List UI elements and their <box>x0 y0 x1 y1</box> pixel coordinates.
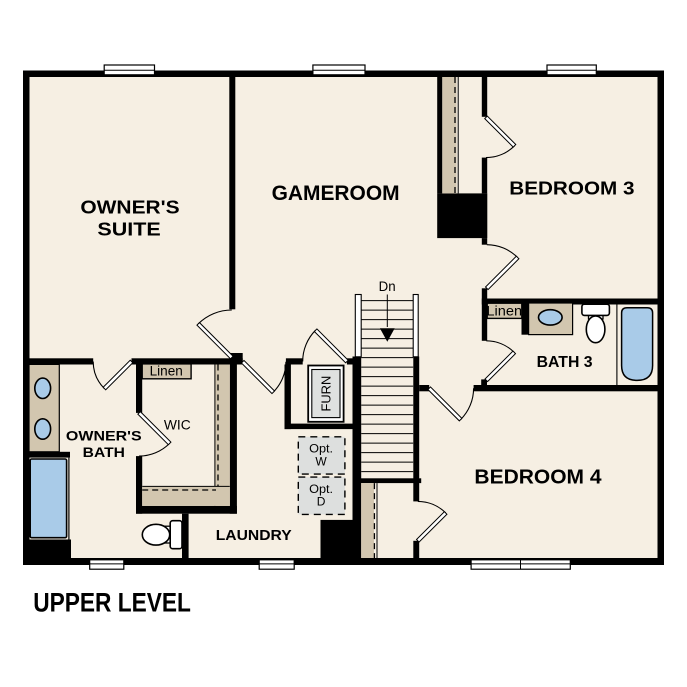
svg-text:FURN: FURN <box>319 376 334 412</box>
svg-text:SUITE: SUITE <box>97 219 160 239</box>
svg-text:OWNER'S: OWNER'S <box>80 198 179 218</box>
svg-text:BEDROOM 3: BEDROOM 3 <box>509 178 634 198</box>
svg-text:GAMEROOM: GAMEROOM <box>272 182 400 205</box>
svg-text:Linen: Linen <box>150 364 183 379</box>
svg-text:Dn: Dn <box>379 279 396 294</box>
svg-text:BATH 3: BATH 3 <box>537 354 593 371</box>
svg-text:BATH: BATH <box>83 444 125 460</box>
svg-text:D: D <box>317 495 326 509</box>
svg-text:OWNER'S: OWNER'S <box>66 427 142 443</box>
svg-text:W: W <box>315 454 327 468</box>
svg-text:BEDROOM 4: BEDROOM 4 <box>474 467 602 489</box>
svg-text:WIC: WIC <box>164 417 191 433</box>
svg-text:UPPER LEVEL: UPPER LEVEL <box>33 588 191 618</box>
svg-text:Linen: Linen <box>486 302 522 318</box>
svg-text:LAUNDRY: LAUNDRY <box>216 527 292 544</box>
